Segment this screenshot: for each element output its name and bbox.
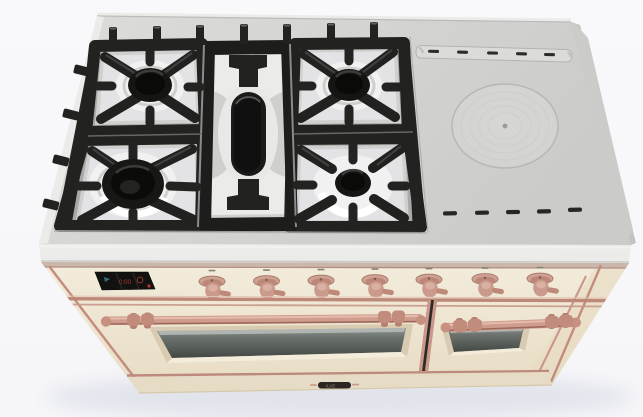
svg-text:ILVE: ILVE (326, 384, 335, 389)
svg-text:0:00: 0:00 (119, 279, 132, 286)
